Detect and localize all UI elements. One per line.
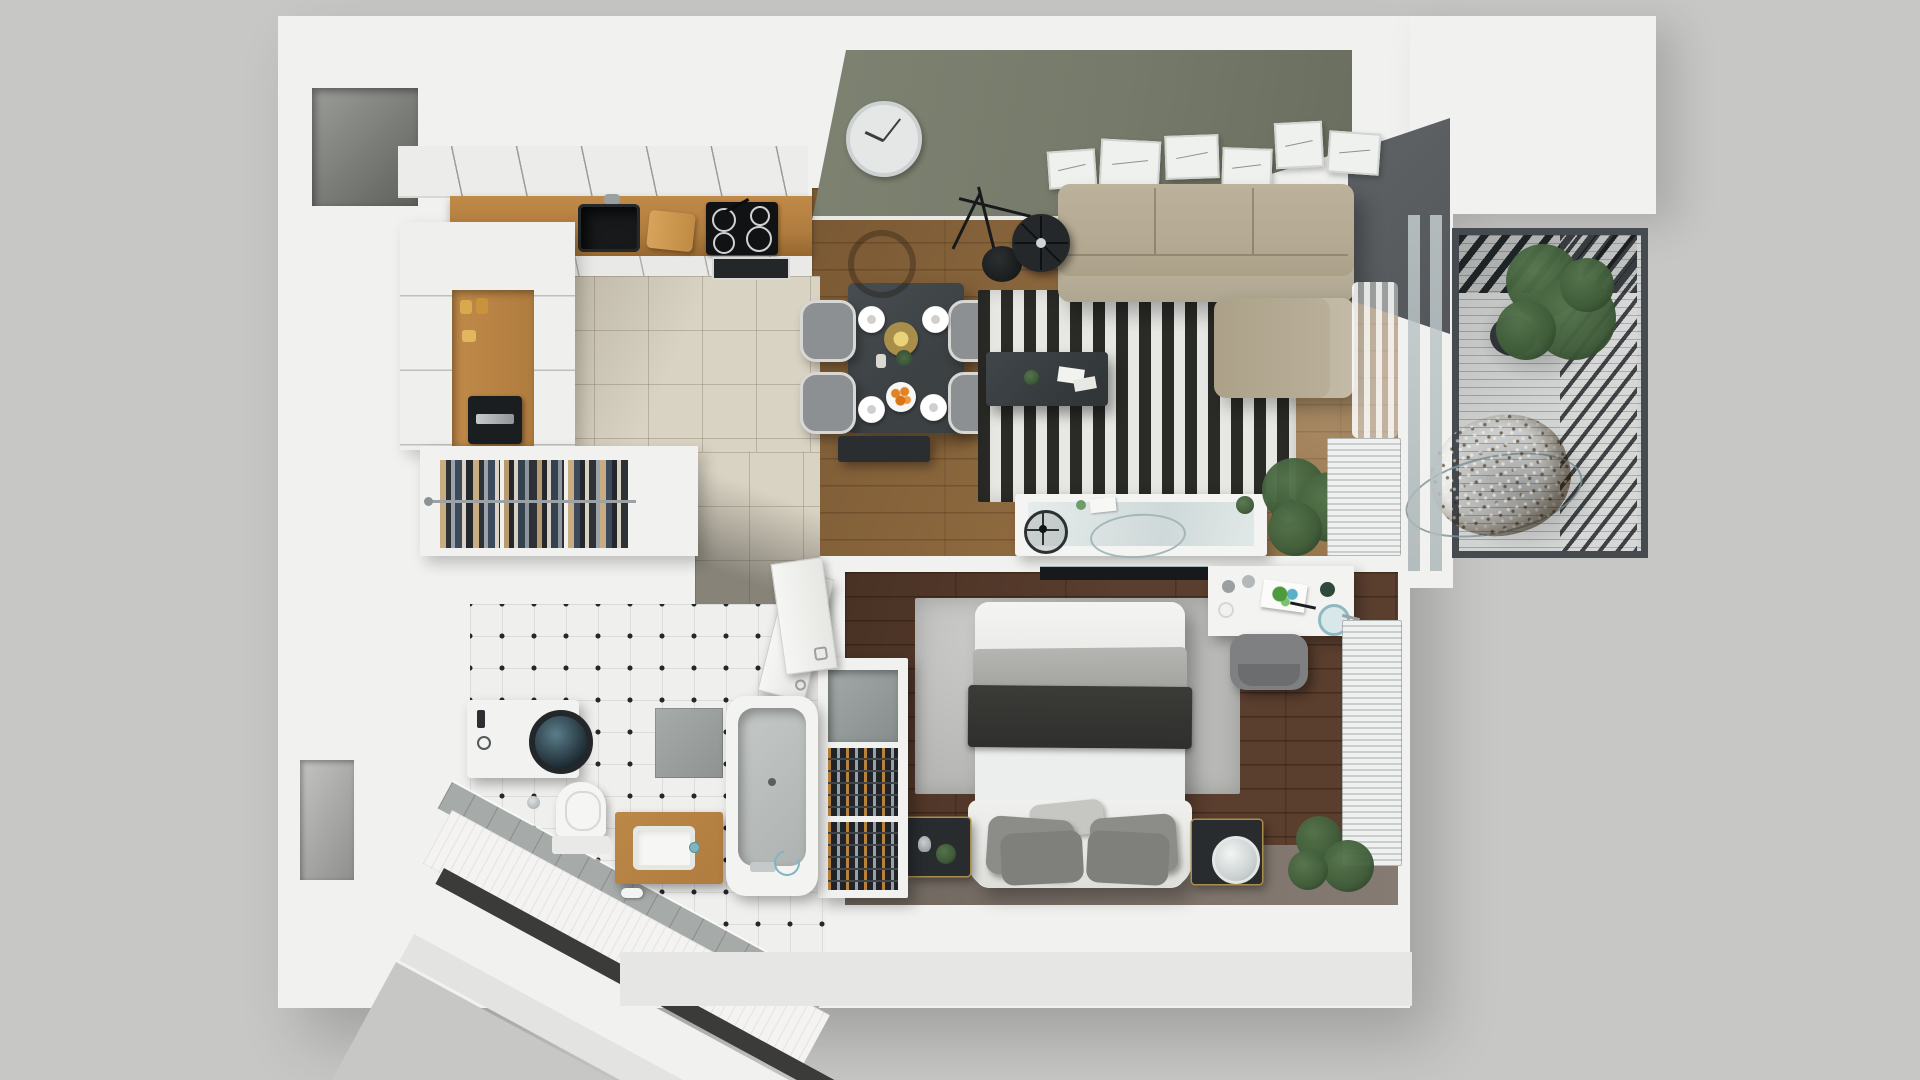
picture-frame	[1221, 147, 1272, 189]
kitchen-upper-cabinets	[398, 146, 808, 198]
coffee-machine-panel	[476, 414, 514, 424]
floor-lamp-shade	[1012, 214, 1070, 272]
tub-drain	[768, 778, 776, 786]
desk-mug	[1242, 575, 1255, 588]
bathroom-vanity	[615, 812, 723, 884]
place-setting-plate	[858, 396, 885, 423]
table-plant	[896, 350, 912, 366]
basin-faucet	[689, 842, 700, 853]
hob-burner	[712, 208, 736, 232]
toilet-tank	[552, 836, 610, 854]
floor-plan-render	[0, 0, 1920, 1080]
washer-dial	[477, 736, 491, 750]
frame-sketch	[1112, 160, 1148, 165]
round-mirror	[1212, 836, 1260, 884]
balcony	[1448, 212, 1656, 572]
place-setting-plate	[920, 394, 947, 421]
kitchen-floor	[540, 276, 820, 454]
pantry-jar	[462, 330, 476, 342]
wine-cabinet	[818, 658, 908, 898]
picture-frame	[1327, 130, 1382, 176]
bed	[975, 602, 1185, 888]
nightstand-plant	[936, 844, 956, 864]
coffee-table	[986, 352, 1108, 406]
hob-burner	[750, 206, 770, 226]
lamp-shade-floor-shadow	[848, 230, 916, 298]
pantry-jar	[476, 298, 488, 314]
pantry-jar	[460, 300, 472, 314]
tv-panel	[1040, 566, 1230, 580]
built-in-oven	[712, 257, 790, 280]
nightstand-right	[1192, 820, 1262, 884]
fruit-plate-oranges	[886, 382, 916, 412]
sectional-sofa	[1058, 184, 1354, 302]
bed-dark-throw	[968, 685, 1193, 749]
sheer-curtain	[1352, 282, 1398, 438]
wardrobe-rail	[432, 500, 636, 503]
coffee-machine	[468, 396, 522, 444]
frame-sketch	[1058, 164, 1086, 171]
frame-sketch	[1232, 164, 1261, 169]
lid-handle	[814, 646, 829, 661]
bedroom-corner-plant	[1322, 840, 1374, 892]
kitchen-faucet	[604, 194, 620, 204]
hob-burner	[746, 226, 772, 252]
picture-frame	[1164, 134, 1220, 180]
dining-chair	[800, 372, 856, 434]
clock-minute-hand	[882, 118, 901, 141]
lamp-hub	[1036, 238, 1046, 248]
balcony-tree	[1560, 258, 1614, 312]
bed-pillow-gray	[1000, 830, 1085, 886]
picture-frame	[1099, 138, 1161, 189]
wardrobe-section-clothes	[440, 460, 500, 548]
wine-rack	[828, 822, 898, 890]
washing-machine	[467, 700, 579, 778]
towel-roll	[621, 888, 643, 898]
toilet-paper-holder	[527, 796, 540, 809]
hob-burner	[713, 232, 735, 254]
sofa-seat-edge	[1064, 254, 1348, 256]
picture-frame	[1274, 121, 1324, 169]
table-candle	[876, 354, 886, 368]
frame-sketch	[1285, 140, 1313, 147]
door-handle	[794, 678, 807, 691]
desk-mug	[1222, 580, 1235, 593]
nightstand-left	[906, 818, 970, 876]
cutting-board	[646, 210, 696, 253]
office-chair-hub	[1039, 525, 1047, 533]
frame-sketch	[1339, 150, 1370, 154]
wall-recess-bottom-left	[300, 760, 354, 880]
bedroom-corner-plant	[1288, 850, 1328, 890]
nightstand-decor	[918, 836, 931, 852]
potted-palm	[1268, 502, 1322, 556]
sofa-chaise	[1214, 298, 1354, 398]
office-chair	[1024, 510, 1068, 554]
window-glass-pane	[1430, 215, 1442, 571]
desk-plant	[1236, 496, 1254, 514]
vanity-basin	[633, 826, 695, 870]
dining-chair	[800, 300, 856, 362]
tub-faucet	[750, 862, 776, 872]
kitchen-sink	[578, 204, 640, 252]
shower-mat-concrete	[655, 708, 723, 778]
desk-cup	[1076, 500, 1086, 510]
sofa-cushion-seam	[1154, 188, 1156, 254]
clock-hour-hand	[865, 131, 884, 142]
washer-door	[529, 710, 593, 774]
wardrobe-section-clothes	[504, 460, 564, 548]
window-glass-pane	[1408, 215, 1420, 571]
media-console	[838, 436, 930, 462]
toilet-seat-ring	[565, 791, 601, 831]
washer-controls	[477, 710, 485, 728]
sofa-cushion-seam	[1252, 188, 1254, 254]
bed-pillow-gray	[1086, 830, 1171, 886]
balcony-tree	[1496, 300, 1556, 360]
bathtub-basin	[738, 708, 806, 866]
desk-candle	[1218, 602, 1234, 618]
desk-book	[1089, 497, 1116, 514]
living-room-radiator	[1327, 438, 1401, 556]
frame-sketch	[1176, 152, 1208, 159]
coffee-table-plant	[1024, 370, 1039, 385]
candle-jar	[1320, 582, 1335, 597]
cabinet-concrete-shelf	[828, 670, 898, 742]
coffee-table-papers	[1073, 376, 1097, 392]
wine-rack	[828, 748, 898, 816]
vanity-chair-back	[1238, 664, 1300, 686]
wall-clock	[846, 101, 922, 177]
place-setting-plate	[858, 306, 885, 333]
magazine	[1260, 579, 1307, 613]
bedroom-radiator	[1342, 620, 1402, 866]
vanity-desk	[1208, 566, 1354, 636]
place-setting-plate	[922, 306, 949, 333]
wardrobe-section-clothes	[568, 460, 628, 548]
building-apron-bottom	[620, 952, 1412, 1006]
toilet	[552, 782, 610, 854]
vanity-chair	[1230, 634, 1308, 690]
induction-hob	[706, 202, 778, 255]
bathtub	[726, 696, 818, 896]
wardrobe-rail-end	[424, 497, 433, 506]
